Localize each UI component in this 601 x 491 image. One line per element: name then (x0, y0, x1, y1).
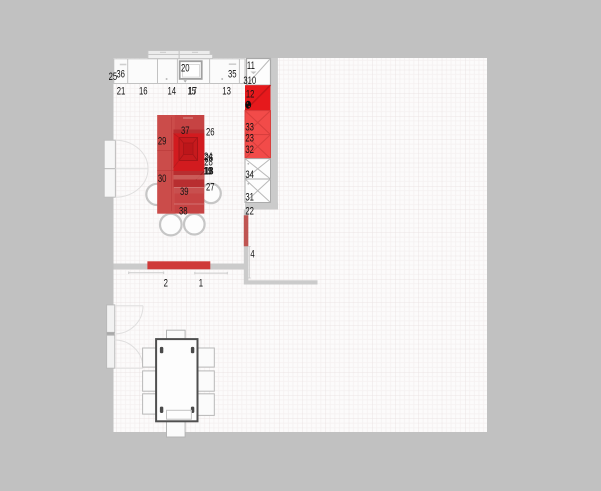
svg-text:14: 14 (168, 85, 177, 98)
svg-text:39: 39 (180, 186, 189, 199)
svg-text:38: 38 (179, 205, 188, 218)
svg-text:31: 31 (245, 191, 254, 204)
svg-text:2: 2 (164, 277, 168, 290)
svg-text:22: 22 (245, 205, 254, 218)
svg-text:35: 35 (228, 68, 237, 81)
svg-text:4: 4 (250, 248, 255, 261)
svg-text:20: 20 (181, 62, 190, 75)
svg-text:36: 36 (116, 68, 125, 81)
svg-text:18: 18 (205, 165, 214, 178)
svg-text:11: 11 (247, 59, 255, 72)
svg-text:30: 30 (158, 173, 167, 186)
svg-text:17: 17 (188, 85, 197, 98)
svg-text:21: 21 (117, 85, 126, 98)
svg-text:37: 37 (181, 125, 190, 138)
svg-text:12: 12 (246, 88, 255, 101)
svg-text:32: 32 (245, 144, 254, 157)
svg-text:29: 29 (158, 135, 167, 148)
svg-text:34: 34 (245, 169, 254, 182)
svg-text:27: 27 (206, 181, 215, 194)
svg-text:10: 10 (248, 74, 257, 87)
svg-text:1: 1 (199, 277, 203, 290)
svg-text:26: 26 (206, 126, 215, 139)
svg-text:16: 16 (139, 85, 148, 98)
svg-text:13: 13 (222, 85, 231, 98)
